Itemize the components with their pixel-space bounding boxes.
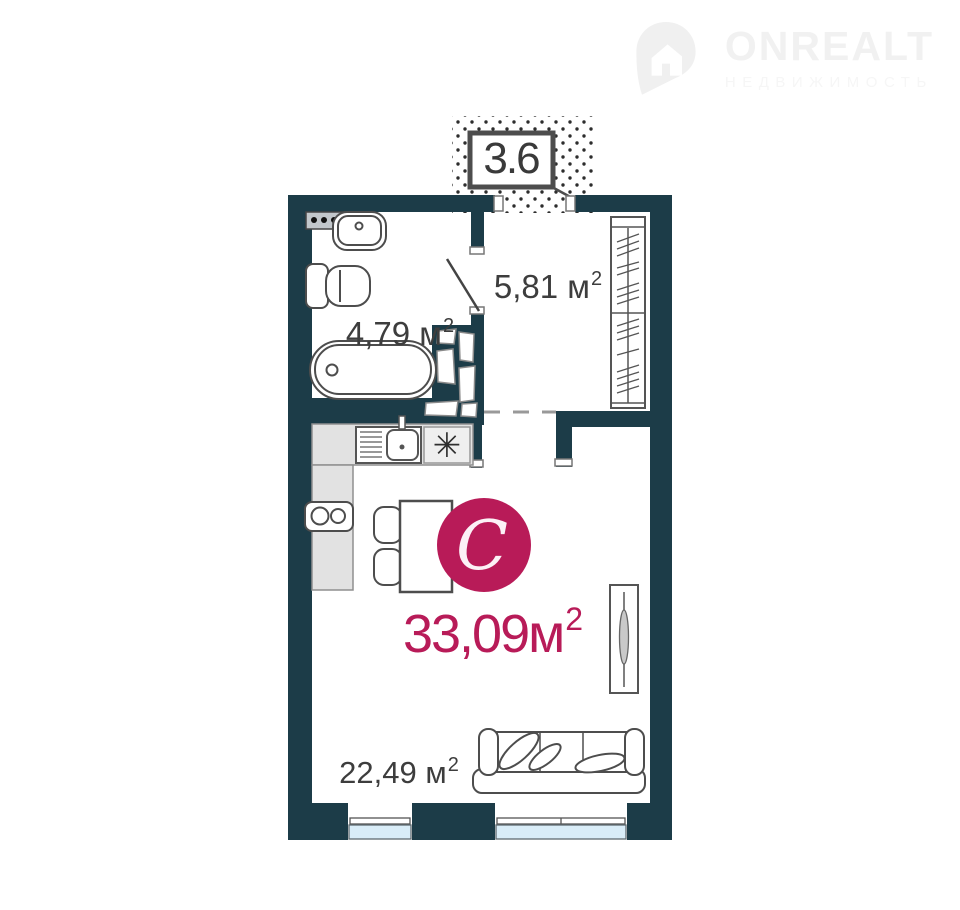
radiator-cabinet [610, 585, 638, 693]
sofa [473, 728, 645, 793]
window-right [495, 804, 627, 839]
outer-wall-bottom-1 [288, 803, 348, 840]
washbasin [333, 212, 386, 250]
bathroom-fixtures [306, 212, 436, 399]
studio-badge: С [437, 498, 531, 592]
hallway-area-label: 5,81 м2 [494, 268, 602, 305]
outer-wall-bottom-3 [627, 803, 672, 840]
chair [374, 549, 402, 585]
outer-wall-right [650, 195, 672, 840]
hall-stub-cap [555, 459, 572, 466]
floorplan: 3.6 [0, 0, 960, 910]
studio-letter: С [456, 507, 508, 586]
total-area-label: 33,09м2 [403, 601, 582, 664]
toilet [306, 264, 370, 308]
hallway [611, 217, 645, 408]
chair [374, 507, 402, 543]
outer-wall-top-left [288, 195, 495, 212]
stove: ✳ [424, 426, 470, 466]
living-area-label: 22,49 м2 [339, 754, 459, 790]
hallway-wall-horizontal [556, 411, 672, 427]
stove-symbol: ✳ [433, 426, 462, 466]
balcony-area-label: 3.6 [483, 134, 539, 183]
kitchen-faucet [399, 416, 405, 429]
bath-door-jamb-top [470, 247, 484, 254]
outer-wall-bottom-2 [412, 803, 495, 840]
hob [305, 502, 353, 531]
bathroom-door-swing [447, 259, 479, 311]
balcony-door-jamb-right [566, 196, 575, 211]
bathroom-area-label: 4,79 м2 [346, 315, 454, 352]
window-left [348, 804, 412, 839]
sofa-arm [479, 729, 498, 775]
wardrobe [611, 217, 645, 408]
balcony-door-jamb-left [494, 196, 503, 211]
sofa-arm [625, 729, 644, 775]
floorplan-page: ONREALT НЕДВИЖИМОСТЬ 3.6 [0, 0, 960, 910]
